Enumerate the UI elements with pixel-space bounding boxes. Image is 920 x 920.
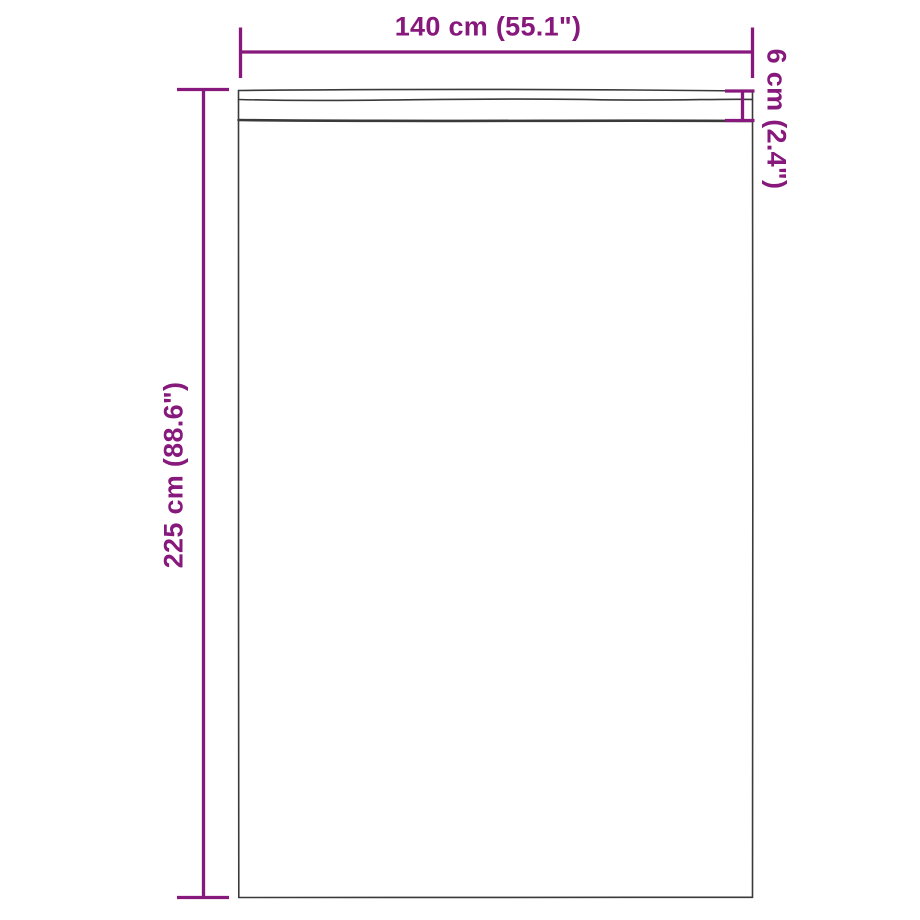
- dimension-diagram: 140 cm (55.1") 225 cm (88.6") 6 cm (2.4"…: [0, 0, 920, 920]
- width-dimension-label: 140 cm (55.1"): [395, 12, 582, 43]
- curtain-header-seam-line: [239, 99, 753, 100]
- height-dimension-label: 225 cm (88.6"): [159, 382, 190, 569]
- curtain-outline: [239, 89, 753, 897]
- curtain-outline-group: [239, 89, 753, 897]
- header-dimension-lines: [725, 91, 755, 121]
- curtain-header-bottom-line: [239, 120, 753, 121]
- header-dimension-label: 6 cm (2.4"): [761, 49, 792, 190]
